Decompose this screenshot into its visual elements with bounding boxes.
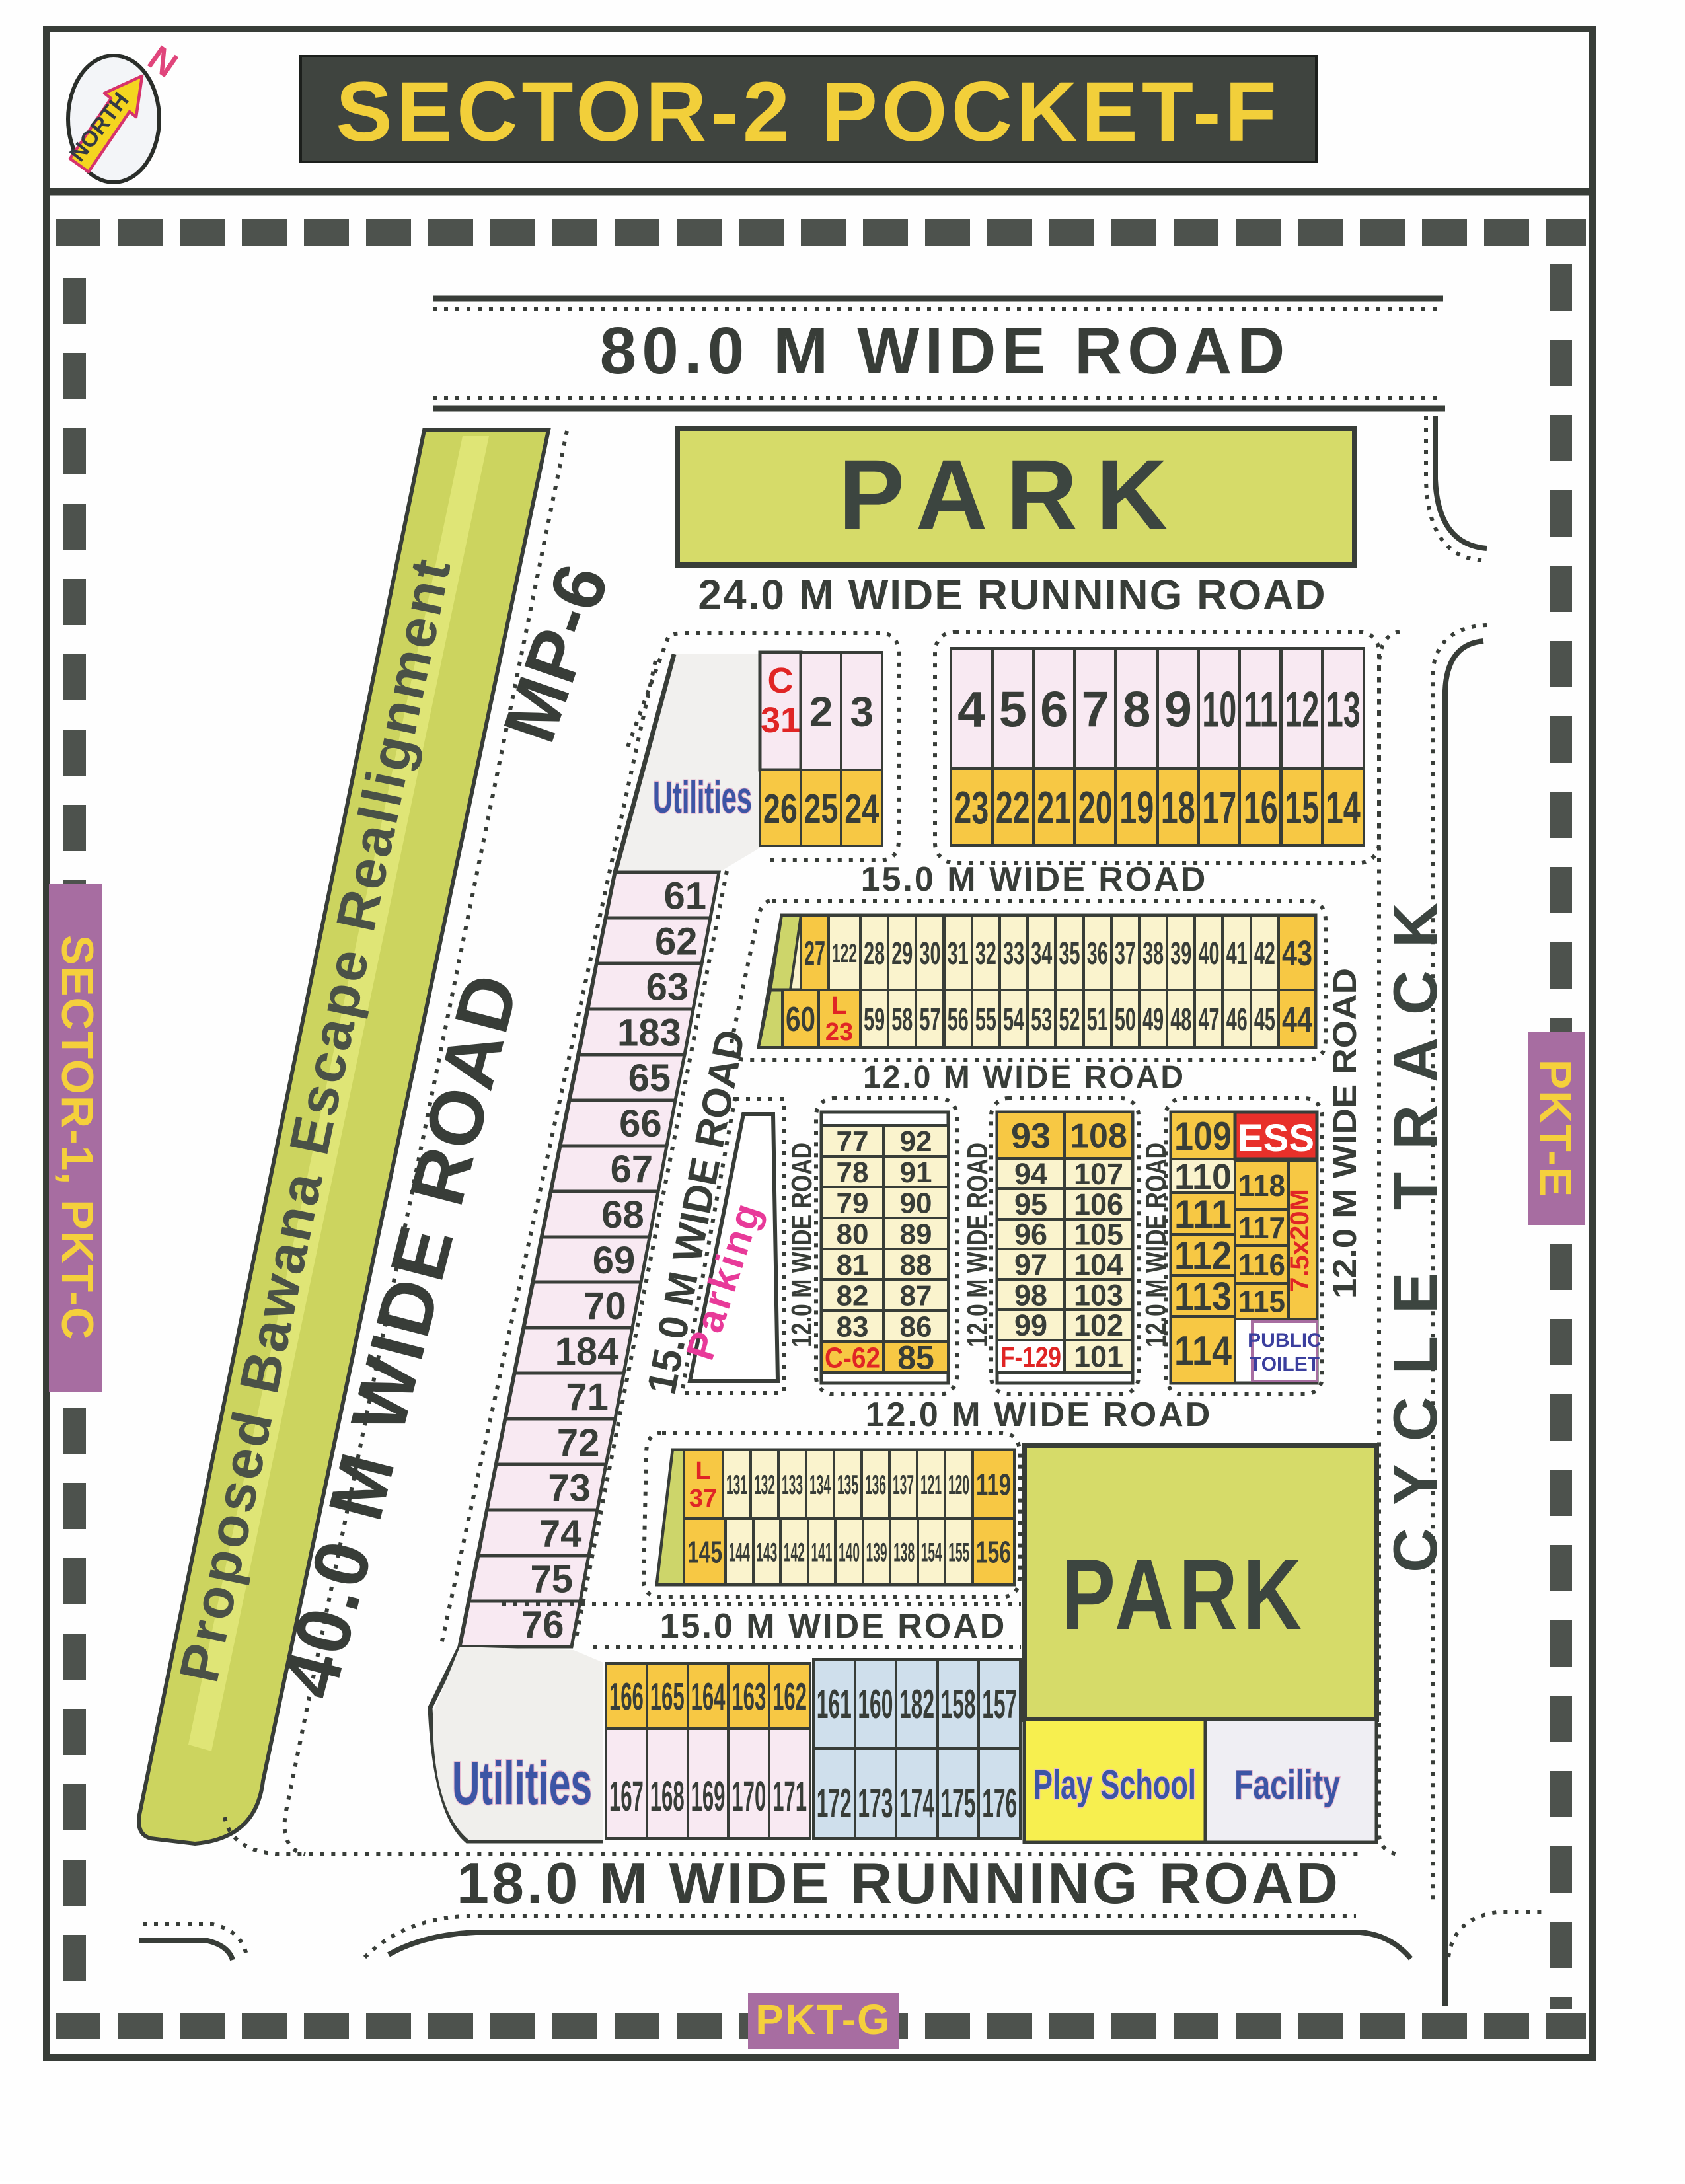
- svg-text:154: 154: [921, 1538, 942, 1567]
- svg-text:PUBLIC: PUBLIC: [1248, 1330, 1322, 1351]
- svg-text:24: 24: [844, 786, 879, 832]
- svg-text:137: 137: [893, 1469, 914, 1500]
- svg-text:18.0 M WIDE RUNNING ROAD: 18.0 M WIDE RUNNING ROAD: [457, 1850, 1341, 1916]
- svg-text:172: 172: [817, 1781, 852, 1826]
- svg-text:24.0 M WIDE RUNNING ROAD: 24.0 M WIDE RUNNING ROAD: [698, 571, 1326, 619]
- svg-text:48: 48: [1170, 1002, 1191, 1037]
- svg-text:133: 133: [782, 1469, 803, 1500]
- svg-text:182: 182: [899, 1682, 934, 1727]
- svg-text:66: 66: [619, 1102, 662, 1145]
- svg-text:ESS: ESS: [1238, 1117, 1314, 1160]
- svg-text:63: 63: [646, 965, 689, 1008]
- svg-text:117: 117: [1238, 1211, 1285, 1245]
- svg-text:27: 27: [804, 934, 825, 973]
- svg-text:77: 77: [837, 1125, 869, 1158]
- svg-text:40: 40: [1199, 936, 1220, 971]
- svg-text:12.0 M WIDE ROAD: 12.0 M WIDE ROAD: [866, 1396, 1213, 1434]
- svg-text:25: 25: [804, 786, 839, 832]
- svg-text:47: 47: [1199, 1002, 1220, 1037]
- svg-text:69: 69: [593, 1239, 636, 1282]
- svg-text:42: 42: [1254, 936, 1275, 971]
- svg-text:134: 134: [809, 1469, 831, 1500]
- svg-text:138: 138: [893, 1538, 915, 1567]
- svg-text:104: 104: [1074, 1248, 1123, 1282]
- svg-text:L: L: [695, 1457, 710, 1485]
- svg-text:143: 143: [756, 1538, 777, 1567]
- svg-text:83: 83: [837, 1310, 869, 1343]
- svg-text:51: 51: [1087, 1002, 1108, 1037]
- svg-text:79: 79: [837, 1187, 869, 1220]
- svg-text:114: 114: [1174, 1328, 1232, 1374]
- svg-text:PKT-E: PKT-E: [1530, 1059, 1581, 1198]
- svg-text:116: 116: [1238, 1248, 1285, 1282]
- svg-text:122: 122: [832, 939, 857, 968]
- svg-text:82: 82: [837, 1280, 869, 1312]
- svg-text:10: 10: [1202, 681, 1236, 737]
- svg-text:132: 132: [754, 1469, 775, 1500]
- svg-text:89: 89: [900, 1218, 932, 1250]
- svg-text:13: 13: [1326, 681, 1361, 737]
- svg-text:52: 52: [1059, 1002, 1080, 1037]
- svg-text:34: 34: [1031, 936, 1052, 971]
- svg-text:14: 14: [1326, 782, 1361, 833]
- svg-text:33: 33: [1003, 936, 1024, 971]
- svg-text:6: 6: [1040, 681, 1068, 737]
- svg-text:88: 88: [900, 1249, 932, 1281]
- svg-text:106: 106: [1074, 1187, 1123, 1221]
- svg-text:166: 166: [609, 1675, 644, 1718]
- svg-text:140: 140: [839, 1538, 860, 1567]
- svg-text:74: 74: [539, 1513, 582, 1556]
- svg-text:57: 57: [920, 1002, 941, 1037]
- svg-text:112: 112: [1174, 1234, 1232, 1278]
- svg-text:92: 92: [900, 1125, 932, 1158]
- svg-text:131: 131: [726, 1469, 747, 1500]
- svg-text:109: 109: [1174, 1114, 1232, 1158]
- svg-text:22: 22: [996, 782, 1030, 833]
- svg-text:160: 160: [858, 1682, 893, 1727]
- svg-text:TOILET: TOILET: [1250, 1353, 1320, 1375]
- svg-text:20: 20: [1078, 782, 1113, 833]
- svg-text:72: 72: [557, 1421, 600, 1464]
- svg-text:141: 141: [811, 1538, 832, 1567]
- svg-text:71: 71: [566, 1376, 609, 1419]
- svg-text:78: 78: [837, 1156, 869, 1189]
- svg-text:86: 86: [900, 1310, 932, 1343]
- svg-text:Utilities: Utilities: [452, 1750, 592, 1817]
- svg-text:175: 175: [941, 1781, 976, 1826]
- svg-text:81: 81: [837, 1249, 869, 1281]
- svg-text:73: 73: [548, 1467, 591, 1510]
- svg-text:L: L: [831, 992, 846, 1020]
- svg-text:49: 49: [1142, 1002, 1164, 1037]
- svg-text:174: 174: [899, 1781, 934, 1826]
- svg-text:PKT-G: PKT-G: [755, 1996, 891, 2043]
- svg-text:105: 105: [1074, 1218, 1123, 1252]
- svg-text:8: 8: [1123, 681, 1150, 737]
- svg-text:C-62: C-62: [825, 1341, 880, 1374]
- svg-text:118: 118: [1238, 1168, 1285, 1203]
- svg-text:3: 3: [850, 688, 874, 735]
- svg-text:169: 169: [691, 1772, 726, 1820]
- svg-text:184: 184: [555, 1330, 619, 1373]
- svg-text:107: 107: [1074, 1157, 1123, 1191]
- svg-text:Facility: Facility: [1234, 1762, 1340, 1808]
- svg-text:144: 144: [729, 1538, 750, 1567]
- svg-text:23: 23: [954, 782, 989, 833]
- svg-text:90: 90: [900, 1187, 932, 1220]
- svg-text:80.0 M WIDE ROAD: 80.0 M WIDE ROAD: [600, 314, 1291, 388]
- svg-text:12.0 M WIDE ROAD: 12.0 M WIDE ROAD: [961, 1143, 994, 1347]
- svg-text:97: 97: [1014, 1248, 1047, 1282]
- svg-text:70: 70: [583, 1285, 626, 1328]
- svg-text:165: 165: [650, 1675, 685, 1718]
- svg-text:4: 4: [957, 681, 985, 737]
- svg-text:103: 103: [1074, 1278, 1123, 1312]
- svg-text:55: 55: [975, 1002, 996, 1037]
- svg-text:110: 110: [1174, 1157, 1232, 1197]
- svg-text:18: 18: [1161, 782, 1195, 833]
- svg-text:7: 7: [1082, 681, 1109, 737]
- svg-text:41: 41: [1226, 936, 1248, 971]
- svg-text:12.0 M WIDE ROAD: 12.0 M WIDE ROAD: [786, 1143, 818, 1347]
- svg-text:39: 39: [1170, 936, 1191, 971]
- svg-text:5: 5: [999, 681, 1027, 737]
- svg-text:170: 170: [731, 1772, 766, 1820]
- svg-text:26: 26: [763, 786, 798, 832]
- svg-text:171: 171: [772, 1772, 807, 1820]
- svg-text:16: 16: [1244, 782, 1278, 833]
- svg-text:65: 65: [628, 1057, 671, 1100]
- svg-text:SECTOR-1, PKT-C: SECTOR-1, PKT-C: [52, 935, 102, 1341]
- svg-text:54: 54: [1003, 1002, 1024, 1037]
- svg-text:99: 99: [1014, 1308, 1047, 1342]
- svg-text:91: 91: [900, 1156, 932, 1189]
- svg-text:136: 136: [865, 1469, 886, 1500]
- svg-text:121: 121: [920, 1469, 942, 1500]
- svg-text:142: 142: [784, 1538, 805, 1567]
- svg-text:2: 2: [809, 688, 833, 735]
- svg-text:37: 37: [689, 1485, 717, 1513]
- svg-text:SECTOR-2 POCKET-F: SECTOR-2 POCKET-F: [336, 65, 1281, 159]
- svg-text:75: 75: [530, 1558, 573, 1601]
- svg-text:31: 31: [761, 700, 800, 740]
- svg-text:157: 157: [982, 1682, 1017, 1727]
- svg-text:56: 56: [948, 1002, 969, 1037]
- svg-text:168: 168: [650, 1772, 685, 1820]
- svg-text:101: 101: [1074, 1340, 1123, 1374]
- svg-text:12.0 M WIDE ROAD: 12.0 M WIDE ROAD: [863, 1060, 1185, 1095]
- svg-text:87: 87: [900, 1280, 932, 1312]
- svg-text:76: 76: [521, 1604, 564, 1647]
- svg-text:17: 17: [1202, 782, 1236, 833]
- svg-text:139: 139: [866, 1538, 887, 1567]
- svg-text:11: 11: [1244, 681, 1278, 737]
- svg-text:46: 46: [1226, 1002, 1248, 1037]
- svg-text:12: 12: [1285, 681, 1319, 737]
- svg-text:15: 15: [1285, 782, 1319, 833]
- svg-text:163: 163: [731, 1675, 766, 1718]
- svg-text:59: 59: [864, 1002, 885, 1037]
- svg-text:36: 36: [1087, 936, 1108, 971]
- svg-text:164: 164: [691, 1675, 726, 1718]
- svg-text:162: 162: [772, 1675, 807, 1718]
- svg-text:173: 173: [858, 1781, 893, 1826]
- svg-text:Play School: Play School: [1033, 1762, 1196, 1808]
- svg-text:37: 37: [1115, 936, 1136, 971]
- svg-text:155: 155: [948, 1538, 969, 1567]
- svg-text:28: 28: [864, 936, 885, 971]
- svg-text:PARK: PARK: [1061, 1538, 1307, 1651]
- svg-text:62: 62: [655, 920, 698, 963]
- svg-text:CYCLE TRACK: CYCLE TRACK: [1380, 880, 1450, 1573]
- svg-text:93: 93: [1011, 1116, 1051, 1156]
- svg-text:156: 156: [976, 1535, 1011, 1569]
- svg-text:44: 44: [1282, 1000, 1312, 1039]
- svg-text:67: 67: [611, 1148, 654, 1191]
- svg-text:102: 102: [1074, 1308, 1123, 1342]
- svg-text:60: 60: [786, 1000, 815, 1039]
- svg-text:43: 43: [1282, 934, 1312, 973]
- svg-text:96: 96: [1014, 1218, 1047, 1252]
- svg-text:45: 45: [1254, 1002, 1275, 1037]
- svg-text:161: 161: [817, 1682, 852, 1727]
- svg-text:85: 85: [897, 1339, 934, 1376]
- svg-text:68: 68: [601, 1193, 644, 1236]
- svg-text:80: 80: [837, 1218, 869, 1250]
- svg-text:7.5x20M: 7.5x20M: [1285, 1189, 1314, 1292]
- svg-text:176: 176: [982, 1781, 1017, 1826]
- svg-text:50: 50: [1115, 1002, 1136, 1037]
- svg-text:PARK: PARK: [839, 439, 1186, 550]
- svg-text:158: 158: [941, 1682, 976, 1727]
- svg-text:32: 32: [975, 936, 996, 971]
- svg-text:19: 19: [1119, 782, 1154, 833]
- svg-text:94: 94: [1014, 1157, 1047, 1191]
- svg-text:111: 111: [1174, 1192, 1232, 1236]
- svg-text:108: 108: [1070, 1117, 1127, 1156]
- svg-text:183: 183: [617, 1011, 681, 1054]
- svg-text:15.0 M WIDE ROAD: 15.0 M WIDE ROAD: [861, 860, 1208, 899]
- svg-text:98: 98: [1014, 1278, 1047, 1312]
- svg-text:Utilities: Utilities: [653, 772, 752, 823]
- svg-text:F-129: F-129: [1000, 1341, 1061, 1373]
- svg-text:29: 29: [891, 936, 913, 971]
- svg-text:21: 21: [1037, 782, 1071, 833]
- svg-text:31: 31: [948, 936, 969, 971]
- svg-text:61: 61: [664, 874, 707, 917]
- svg-text:167: 167: [609, 1772, 644, 1820]
- svg-text:135: 135: [837, 1469, 858, 1500]
- svg-text:9: 9: [1164, 681, 1192, 737]
- svg-text:30: 30: [920, 936, 941, 971]
- svg-text:12.0 M WIDE ROAD: 12.0 M WIDE ROAD: [1326, 968, 1363, 1299]
- svg-text:145: 145: [687, 1535, 722, 1569]
- svg-text:C: C: [768, 661, 794, 700]
- svg-text:35: 35: [1059, 936, 1080, 971]
- svg-text:115: 115: [1238, 1285, 1285, 1319]
- svg-text:23: 23: [825, 1018, 853, 1046]
- svg-text:15.0 M WIDE ROAD: 15.0 M WIDE ROAD: [660, 1607, 1007, 1645]
- svg-text:53: 53: [1031, 1002, 1052, 1037]
- svg-text:113: 113: [1174, 1275, 1232, 1319]
- svg-text:119: 119: [976, 1468, 1011, 1502]
- svg-text:95: 95: [1014, 1187, 1047, 1221]
- svg-text:38: 38: [1142, 936, 1164, 971]
- svg-text:12.0 M WIDE ROAD: 12.0 M WIDE ROAD: [1140, 1143, 1172, 1347]
- svg-text:58: 58: [891, 1002, 913, 1037]
- svg-text:120: 120: [948, 1469, 969, 1500]
